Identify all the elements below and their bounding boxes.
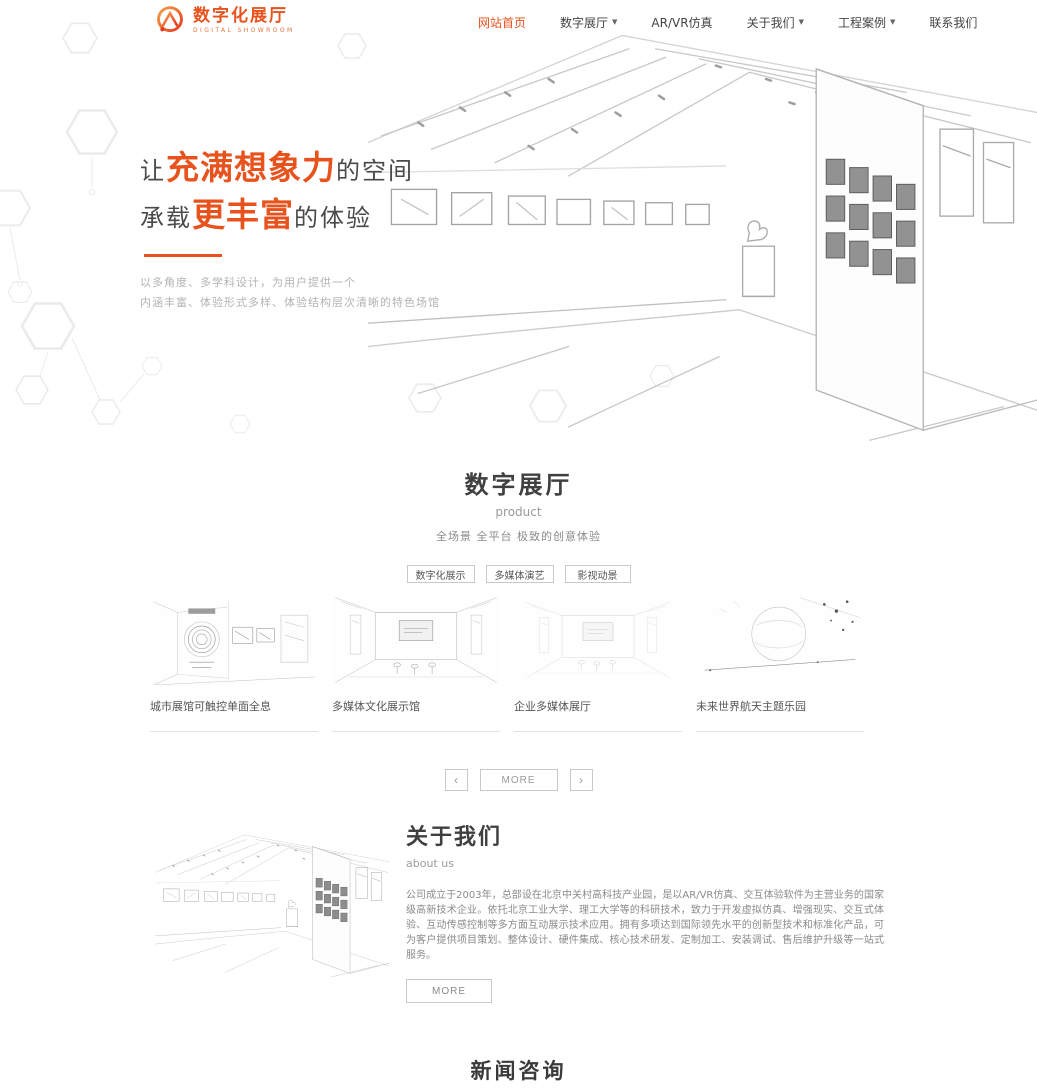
about-body-text: 公司成立于2003年，总部设在北京中关村高科技产业园，是以AR/VR仿真、交互体…	[406, 888, 884, 963]
about-more-button[interactable]: MORE	[406, 979, 492, 1003]
section-subtitle: product	[0, 505, 1037, 519]
brand-name: 数字化展厅	[193, 7, 295, 26]
section-title: 数字展厅	[0, 465, 1037, 500]
about-gallery-sketch	[155, 815, 390, 991]
gallery-thumbnail	[696, 595, 864, 685]
nav-item-label: 关于我们	[747, 14, 795, 31]
nav-item-about[interactable]: 关于我们▼	[747, 14, 804, 31]
gallery-caption: 多媒体文化展示馆	[332, 698, 500, 714]
hero-description: 以多角度、多学科设计，为用户提供一个 内涵丰富、体验形式多样、体验结构层次清晰的…	[140, 273, 440, 313]
gallery-item[interactable]: 未来世界航天主题乐园	[696, 595, 864, 732]
nav-item-label: 联系我们	[929, 14, 977, 31]
product-gallery: 城市展馆可触控单面全息 多媒体文化展示馆 企业多媒体展厅	[150, 595, 864, 732]
brand-text: 数字化展厅 DIGITAL SHOWROOM	[193, 7, 295, 34]
nav-item-contact[interactable]: 联系我们	[929, 14, 977, 31]
gallery-item[interactable]: 城市展馆可触控单面全息	[150, 595, 318, 732]
section-tagline: 全场景 全平台 极致的创意体验	[0, 528, 1037, 544]
brand-logo-icon	[153, 3, 187, 37]
hero-headline-line1: 让充满想象力的空间	[140, 146, 440, 193]
chevron-left-icon: ‹	[454, 773, 458, 787]
chevron-down-icon: ▼	[890, 19, 895, 26]
next-button[interactable]: ›	[570, 769, 593, 791]
hero-section: 让充满想象力的空间 承载更丰富的体验 以多角度、多学科设计，为用户提供一个 内涵…	[0, 0, 1037, 458]
more-button[interactable]: MORE	[480, 769, 558, 791]
nav-item-label: 网站首页	[478, 14, 526, 31]
divider	[332, 731, 500, 732]
brand-logo[interactable]: 数字化展厅 DIGITAL SHOWROOM	[153, 3, 295, 37]
news-section: 新闻咨询	[0, 1055, 1037, 1085]
gallery-pager: ‹ MORE ›	[0, 769, 1037, 791]
about-title: 关于我们	[406, 819, 884, 851]
about-image	[155, 815, 390, 991]
gallery-item[interactable]: 企业多媒体展厅	[514, 595, 682, 732]
page: 数字化展厅 DIGITAL SHOWROOM 网站首页 数字展厅▼ AR/VR仿…	[0, 0, 1037, 1088]
chevron-right-icon: ›	[579, 773, 583, 787]
filter-film-scene[interactable]: 影视动景	[565, 565, 631, 583]
nav-item-digital-hall[interactable]: 数字展厅▼	[560, 14, 617, 31]
nav-item-arvr[interactable]: AR/VR仿真	[651, 14, 712, 31]
gallery-caption: 企业多媒体展厅	[514, 698, 682, 714]
nav-item-label: AR/VR仿真	[651, 14, 712, 31]
gallery-thumbnail	[332, 595, 500, 685]
header: 数字化展厅 DIGITAL SHOWROOM 网站首页 数字展厅▼ AR/VR仿…	[0, 0, 1037, 44]
nav-item-label: 数字展厅	[560, 14, 608, 31]
filter-multimedia-performance[interactable]: 多媒体演艺	[486, 565, 554, 583]
gallery-caption: 未来世界航天主题乐园	[696, 698, 864, 714]
gallery-thumbnail	[514, 595, 682, 685]
filter-buttons: 数字化展示 多媒体演艺 影视动景	[0, 565, 1037, 583]
prev-button[interactable]: ‹	[445, 769, 468, 791]
divider	[696, 731, 864, 732]
hero-headline-line2: 承载更丰富的体验	[140, 193, 440, 240]
digital-hall-section: 数字展厅 product 全场景 全平台 极致的创意体验 数字化展示 多媒体演艺…	[0, 465, 1037, 791]
chevron-down-icon: ▼	[612, 19, 617, 26]
divider	[514, 731, 682, 732]
main-nav: 网站首页 数字展厅▼ AR/VR仿真 关于我们▼ 工程案例▼ 联系我们	[478, 0, 977, 44]
divider	[150, 731, 318, 732]
gallery-thumbnail	[150, 595, 318, 685]
hero-copy: 让充满想象力的空间 承载更丰富的体验 以多角度、多学科设计，为用户提供一个 内涵…	[140, 146, 440, 313]
about-subtitle: about us	[406, 857, 884, 870]
about-copy: 关于我们 about us 公司成立于2003年，总部设在北京中关村高科技产业园…	[406, 819, 884, 1003]
gallery-caption: 城市展馆可触控单面全息	[150, 698, 318, 714]
brand-subtitle: DIGITAL SHOWROOM	[193, 27, 295, 34]
hero-gallery-sketch	[368, 12, 1037, 447]
hero-accent-bar	[144, 254, 222, 257]
gallery-item[interactable]: 多媒体文化展示馆	[332, 595, 500, 732]
nav-item-label: 工程案例	[838, 14, 886, 31]
nav-item-cases[interactable]: 工程案例▼	[838, 14, 895, 31]
chevron-down-icon: ▼	[799, 19, 804, 26]
filter-digital-display[interactable]: 数字化展示	[407, 565, 475, 583]
nav-item-home[interactable]: 网站首页	[478, 14, 526, 31]
news-title: 新闻咨询	[0, 1055, 1037, 1085]
